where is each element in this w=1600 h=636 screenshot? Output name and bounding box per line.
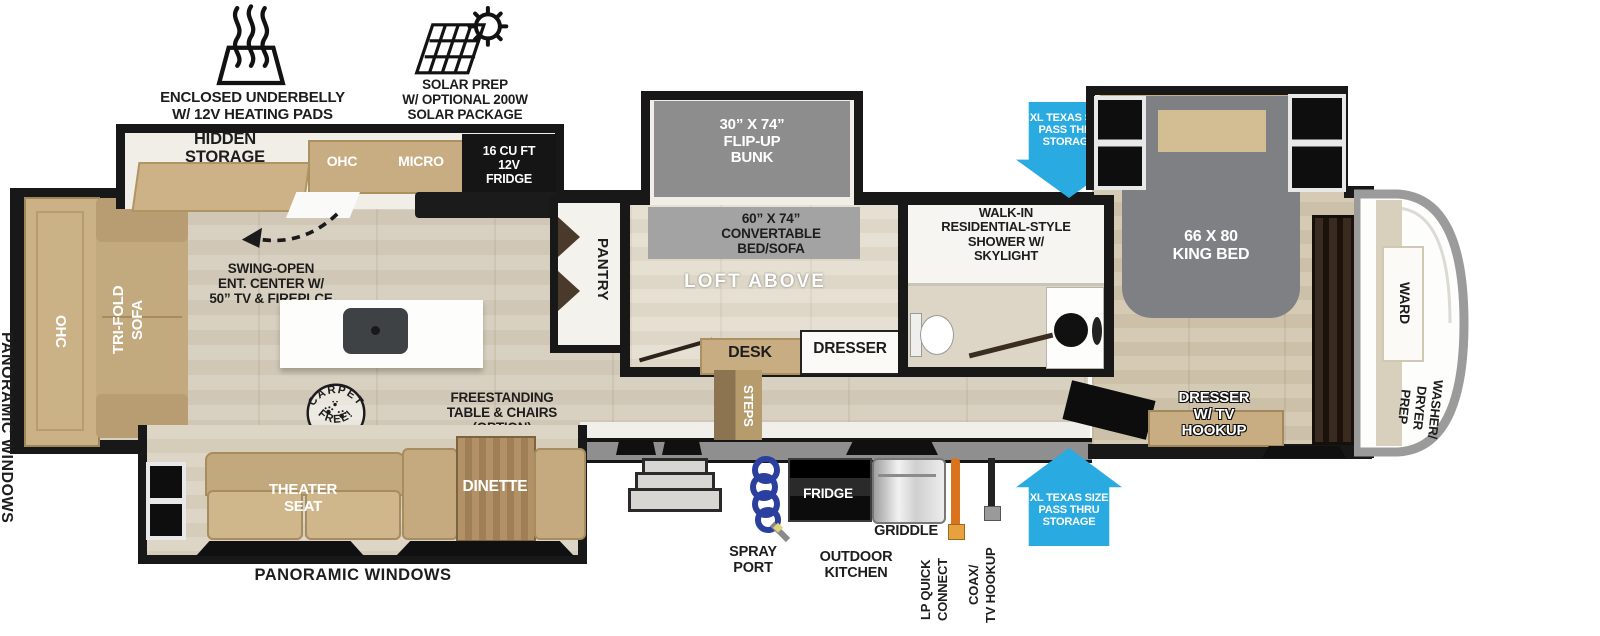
desk-label: DESK	[702, 344, 798, 362]
loft-above-label: LOFT ABOVE	[655, 272, 855, 293]
island-sink	[343, 308, 408, 354]
coax-tv-hookup-label: COAX/ TV HOOKUP	[966, 522, 1010, 636]
tri-fold-sofa-label: TRI-FOLD SOFA	[110, 255, 170, 385]
fridge-12v-label: 16 CU FT 12V FRIDGE	[462, 145, 556, 186]
bed-pillow	[1158, 110, 1266, 152]
mid-wall-window	[846, 440, 938, 455]
griddle-lid-line	[878, 474, 936, 477]
slide-window-1	[196, 541, 364, 556]
lp-connector	[948, 524, 965, 540]
convertable-label: 60” X 74” CONVERTABLE BED/SOFA	[688, 212, 854, 257]
micro-label: MICRO	[378, 154, 464, 169]
kitchen-ohc-label: OHC	[312, 154, 372, 169]
underbelly-label: ENCLOSED UNDERBELLY W/ 12V HEATING PADS	[145, 90, 360, 123]
bedroom-window-right	[1288, 94, 1346, 192]
panoramic-windows-bottom-label: PANORAMIC WINDOWS	[248, 566, 458, 584]
solar-prep-icon	[405, 4, 510, 80]
pantry-shelf-top	[558, 217, 580, 257]
vanity-sink	[1054, 313, 1088, 347]
ward-label: WARD	[1390, 260, 1412, 346]
bedroom-window-left	[1094, 96, 1146, 190]
coax-cable	[988, 458, 995, 508]
rear-ohc-label: OHC	[46, 296, 68, 366]
bedroom-bottom-window	[1262, 446, 1346, 458]
flip-up-bunk-label: 30” X 74” FLIP-UP BUNK	[672, 117, 832, 167]
entry-door-pane-2	[662, 440, 702, 455]
slide-side-window	[146, 462, 186, 540]
toilet-bowl	[920, 315, 954, 355]
pantry-label: PANTRY	[588, 214, 610, 324]
floorplan-canvas: ENCLOSED UNDERBELLY W/ 12V HEATING PADS …	[0, 0, 1600, 636]
steps-label: STEPS	[733, 376, 755, 436]
king-bed-label: 66 X 80 KING BED	[1150, 228, 1272, 263]
solar-prep-label: SOLAR PREP W/ OPTIONAL 200W SOLAR PACKAG…	[385, 78, 545, 123]
bath-door-swing	[969, 333, 1054, 359]
griddle	[872, 458, 946, 524]
panoramic-windows-left-label: PANORAMIC WINDOWS	[0, 218, 15, 636]
coax-connector	[984, 506, 1001, 521]
kitchen-counter	[415, 192, 557, 218]
theater-seat-label: THEATER SEAT	[250, 482, 356, 515]
washer-dryer-label: WASHER/ DRYER PREP	[1392, 360, 1447, 456]
lp-quick-connect-label: LP QUICK CONNECT	[918, 545, 962, 635]
dinette-label: DINETTE	[428, 478, 562, 495]
swing-open-arrow	[232, 203, 347, 258]
slide-window-2	[396, 541, 574, 556]
heating-pads-icon	[208, 2, 294, 90]
griddle-label: GRIDDLE	[858, 524, 954, 540]
outdoor-kitchen-label: OUTDOOR KITCHEN	[796, 550, 916, 582]
dresser-tv-label: DRESSER W/ TV HOOKUP	[1144, 390, 1284, 440]
hidden-storage-label: HIDDEN STORAGE	[158, 130, 292, 166]
lp-hose	[951, 458, 960, 528]
pantry-shelf-bottom	[558, 271, 580, 311]
vanity-faucet	[1092, 317, 1102, 345]
shower-label: WALK-IN RESIDENTIAL-STYLE SHOWER W/ SKYL…	[914, 206, 1098, 263]
outdoor-fridge-label: FRIDGE	[790, 487, 866, 502]
entry-step-3	[628, 488, 722, 512]
sink-faucet	[371, 326, 380, 335]
spray-port-label: SPRAY PORT	[710, 545, 796, 577]
pass-thru-bottom-label: XL TEXAS SIZE PASS THRU STORAGE	[1026, 492, 1112, 528]
entry-door-pane-1	[616, 440, 656, 455]
bunk-dresser-label: DRESSER	[800, 340, 900, 357]
